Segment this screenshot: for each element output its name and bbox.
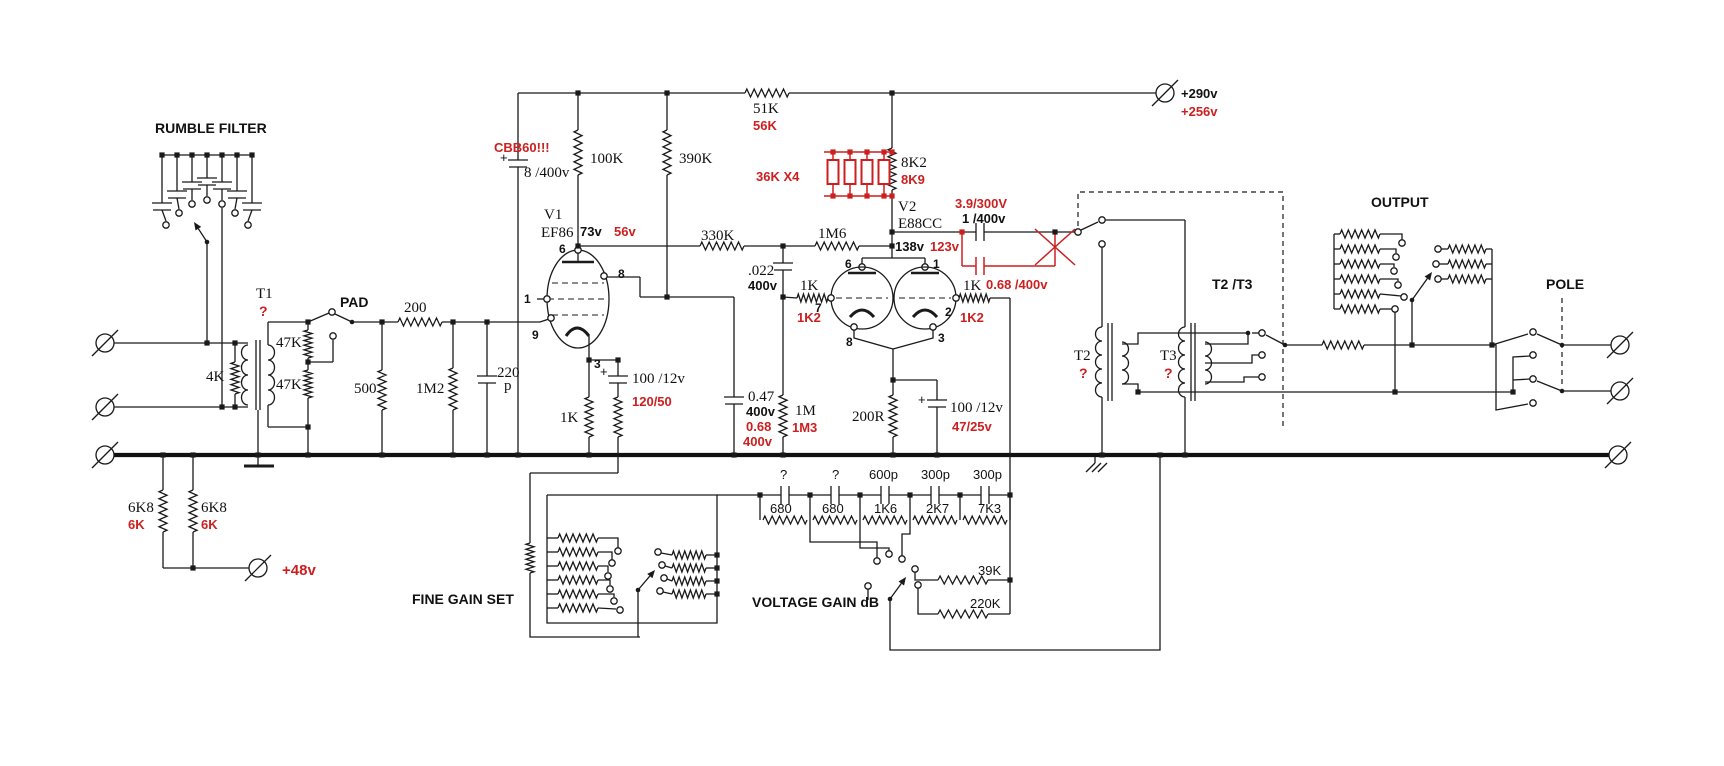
title-voltage-gain: VOLTAGE GAIN dB — [752, 594, 879, 610]
v1-pin6: 6 — [559, 242, 566, 256]
plus-100-12-v2: + — [918, 392, 926, 407]
r-1m6: 1M6 — [818, 226, 847, 242]
vg-res-1: 680 — [770, 501, 792, 516]
t3-name: T3 — [1160, 348, 1177, 364]
title-fine-gain-set: FINE GAIN SET — [412, 591, 514, 607]
r-330k: 330K — [701, 228, 735, 244]
v1-volt: 73v — [580, 224, 602, 239]
vg-cap-5: 300p — [973, 467, 1002, 482]
title-rumble-filter: RUMBLE FILTER — [155, 120, 267, 136]
r-1k-g2-mod: 1K2 — [960, 310, 984, 325]
v1-input-line — [352, 318, 549, 455]
r-100k: 100K — [590, 151, 624, 167]
t3-query: ? — [1164, 365, 1173, 381]
plus-8-400v: + — [500, 150, 508, 165]
t2-query: ? — [1079, 365, 1088, 381]
vg-res-5: 7K3 — [978, 501, 1001, 516]
v2-pin3: 3 — [938, 331, 945, 345]
r-4k: 4K — [206, 369, 225, 385]
title-t2t3: T2 /T3 — [1212, 276, 1253, 292]
r-1m-mod: 1M3 — [792, 420, 817, 435]
c-047-v: 400v — [746, 404, 776, 419]
v2-pin8: 8 — [846, 335, 853, 349]
t3-transformer — [1179, 323, 1260, 455]
v2-volt-mod: 123v — [930, 239, 960, 254]
t2-transformer — [1096, 323, 1249, 455]
r-200r: 200R — [852, 409, 885, 425]
r-1m: 1M — [795, 403, 816, 419]
vg-cap-4: 300p — [921, 467, 950, 482]
c-047-mod-v: 400v — [743, 434, 773, 449]
r-1k-g1: 1K — [800, 278, 819, 294]
r-390k: 390K — [679, 151, 713, 167]
r-1k-g2: 1K — [963, 278, 982, 294]
r-6k8-a-mod: 6K — [128, 517, 145, 532]
vg-res-2: 680 — [822, 501, 844, 516]
title-output: OUTPUT — [1371, 194, 1429, 210]
c-220p-b: p — [504, 378, 512, 394]
v2-name: V2 — [898, 199, 916, 215]
vg-cap-3: 600p — [869, 467, 898, 482]
vg-res-3: 1K6 — [874, 501, 897, 516]
r-8k2-mod: 8K9 — [901, 172, 925, 187]
v1-pin9: 9 — [532, 328, 539, 342]
plus-100-12-v1: + — [600, 364, 608, 379]
r-8k2: 8K2 — [901, 155, 927, 171]
title-pad: PAD — [340, 294, 369, 310]
t1-query: ? — [259, 303, 268, 319]
c-022-v: 400v — [748, 278, 778, 293]
preamp-schematic: RUMBLE FILTERPADFINE GAIN SETVOLTAGE GAI… — [0, 0, 1724, 766]
output-lines — [1135, 341, 1515, 395]
vg-res-220k: 220K — [970, 596, 1001, 611]
c-100-12v-v1: 100 /12v — [632, 371, 685, 387]
v2-pin7: 7 — [815, 301, 822, 315]
r-36kx4: 36K X4 — [756, 169, 800, 184]
ground-bus — [92, 442, 1631, 472]
v2-pin1: 1 — [933, 257, 940, 271]
input-connectors — [92, 330, 248, 420]
v1-pin1: 1 — [524, 292, 531, 306]
supply-rail — [518, 80, 1178, 106]
v2-pin6: 6 — [845, 257, 852, 271]
r-6k8-b: 6K8 — [201, 500, 227, 516]
r-47k-a: 47K — [276, 335, 302, 351]
b-plus-mod: +256v — [1181, 104, 1218, 119]
r-51k-mod: 56K — [753, 118, 777, 133]
b-plus: +290v — [1181, 86, 1218, 101]
v2-volt: 138v — [895, 239, 925, 254]
c-022: .022 — [748, 263, 774, 279]
v1-tube — [537, 243, 670, 360]
title-pole: POLE — [1546, 276, 1584, 292]
r-6k8-a: 6K8 — [128, 500, 154, 516]
t1-name: T1 — [256, 286, 273, 302]
c-068-400v: 0.68 /400v — [986, 277, 1048, 292]
c-couple: 1 /400v — [962, 211, 1006, 226]
v1-name: V1 — [544, 207, 562, 223]
input-termination — [231, 340, 239, 409]
vg-res-4: 2K7 — [926, 501, 949, 516]
vg-res-39k: 39K — [978, 563, 1001, 578]
r-6k8-b-mod: 6K — [201, 517, 218, 532]
pad-network — [304, 309, 354, 455]
vg-cap-2: ? — [832, 467, 839, 482]
fine-gain-set — [526, 473, 720, 637]
r-1m2: 1M2 — [416, 381, 444, 397]
t2-name: T2 — [1074, 348, 1091, 364]
c-100-12v-v2: 100 /12v — [950, 400, 1003, 416]
v1-volt-mod: 56v — [614, 224, 636, 239]
cap-8-400v: 8 /400v — [524, 165, 570, 181]
phantom-48v: +48v — [282, 562, 316, 579]
r-47k-b: 47K — [276, 377, 302, 393]
v2-type: E88CC — [898, 216, 942, 232]
r-200: 200 — [404, 300, 427, 316]
r-51k: 51K — [753, 101, 779, 117]
v1-type: EF86 — [541, 225, 574, 241]
secondary-selector — [1259, 330, 1322, 380]
v1-pin8: 8 — [618, 267, 625, 281]
c-047-mod: 0.68 — [746, 419, 771, 434]
c-couple-mod: 3.9/300V — [955, 196, 1007, 211]
c-100-12v-v1-mod: 120/50 — [632, 394, 672, 409]
voltage-gain-network — [717, 455, 1160, 650]
c-047: 0.47 — [748, 389, 775, 405]
v2-pin2: 2 — [945, 305, 952, 319]
interstage-line — [578, 242, 892, 455]
schematic-canvas: RUMBLE FILTERPADFINE GAIN SETVOLTAGE GAI… — [0, 0, 1724, 766]
r-1k-v1: 1K — [560, 410, 579, 426]
output-attenuator — [1334, 230, 1492, 392]
vg-cap-1: ? — [780, 467, 787, 482]
c-100-12v-v2-mod: 47/25v — [952, 419, 993, 434]
r-500: 500 — [354, 381, 377, 397]
